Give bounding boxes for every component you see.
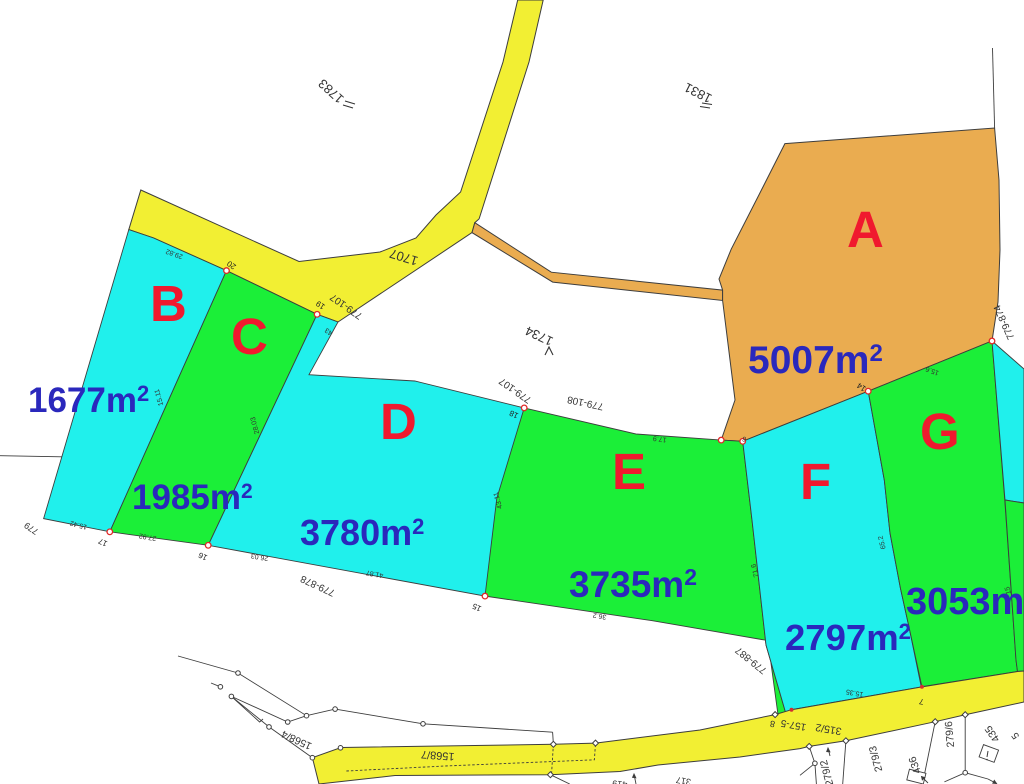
svg-text:F: F (800, 453, 831, 510)
svg-text:E: E (612, 443, 646, 500)
svg-text:1985m2: 1985m2 (132, 478, 253, 517)
svg-text:C: C (231, 308, 268, 365)
svg-text:D: D (380, 393, 417, 450)
svg-text:3735m2: 3735m2 (569, 564, 697, 605)
svg-text:B: B (150, 275, 187, 332)
svg-text:3780m2: 3780m2 (300, 512, 424, 553)
svg-text:1677m2: 1677m2 (28, 381, 149, 420)
svg-text:1568/7: 1568/7 (421, 748, 455, 762)
svg-text:279/6: 279/6 (943, 720, 957, 747)
svg-text:G: G (920, 403, 960, 460)
svg-text:2797m2: 2797m2 (785, 617, 911, 658)
svg-text:A: A (847, 201, 884, 258)
svg-text:5007m2: 5007m2 (748, 339, 883, 382)
